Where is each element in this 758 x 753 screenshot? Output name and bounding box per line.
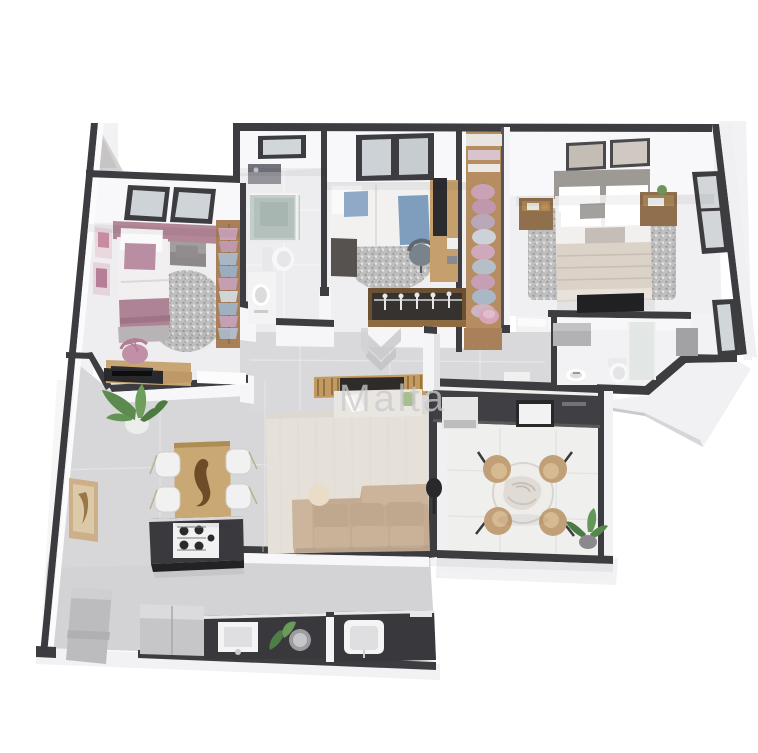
svg-text:Malta: Malta <box>339 378 447 420</box>
